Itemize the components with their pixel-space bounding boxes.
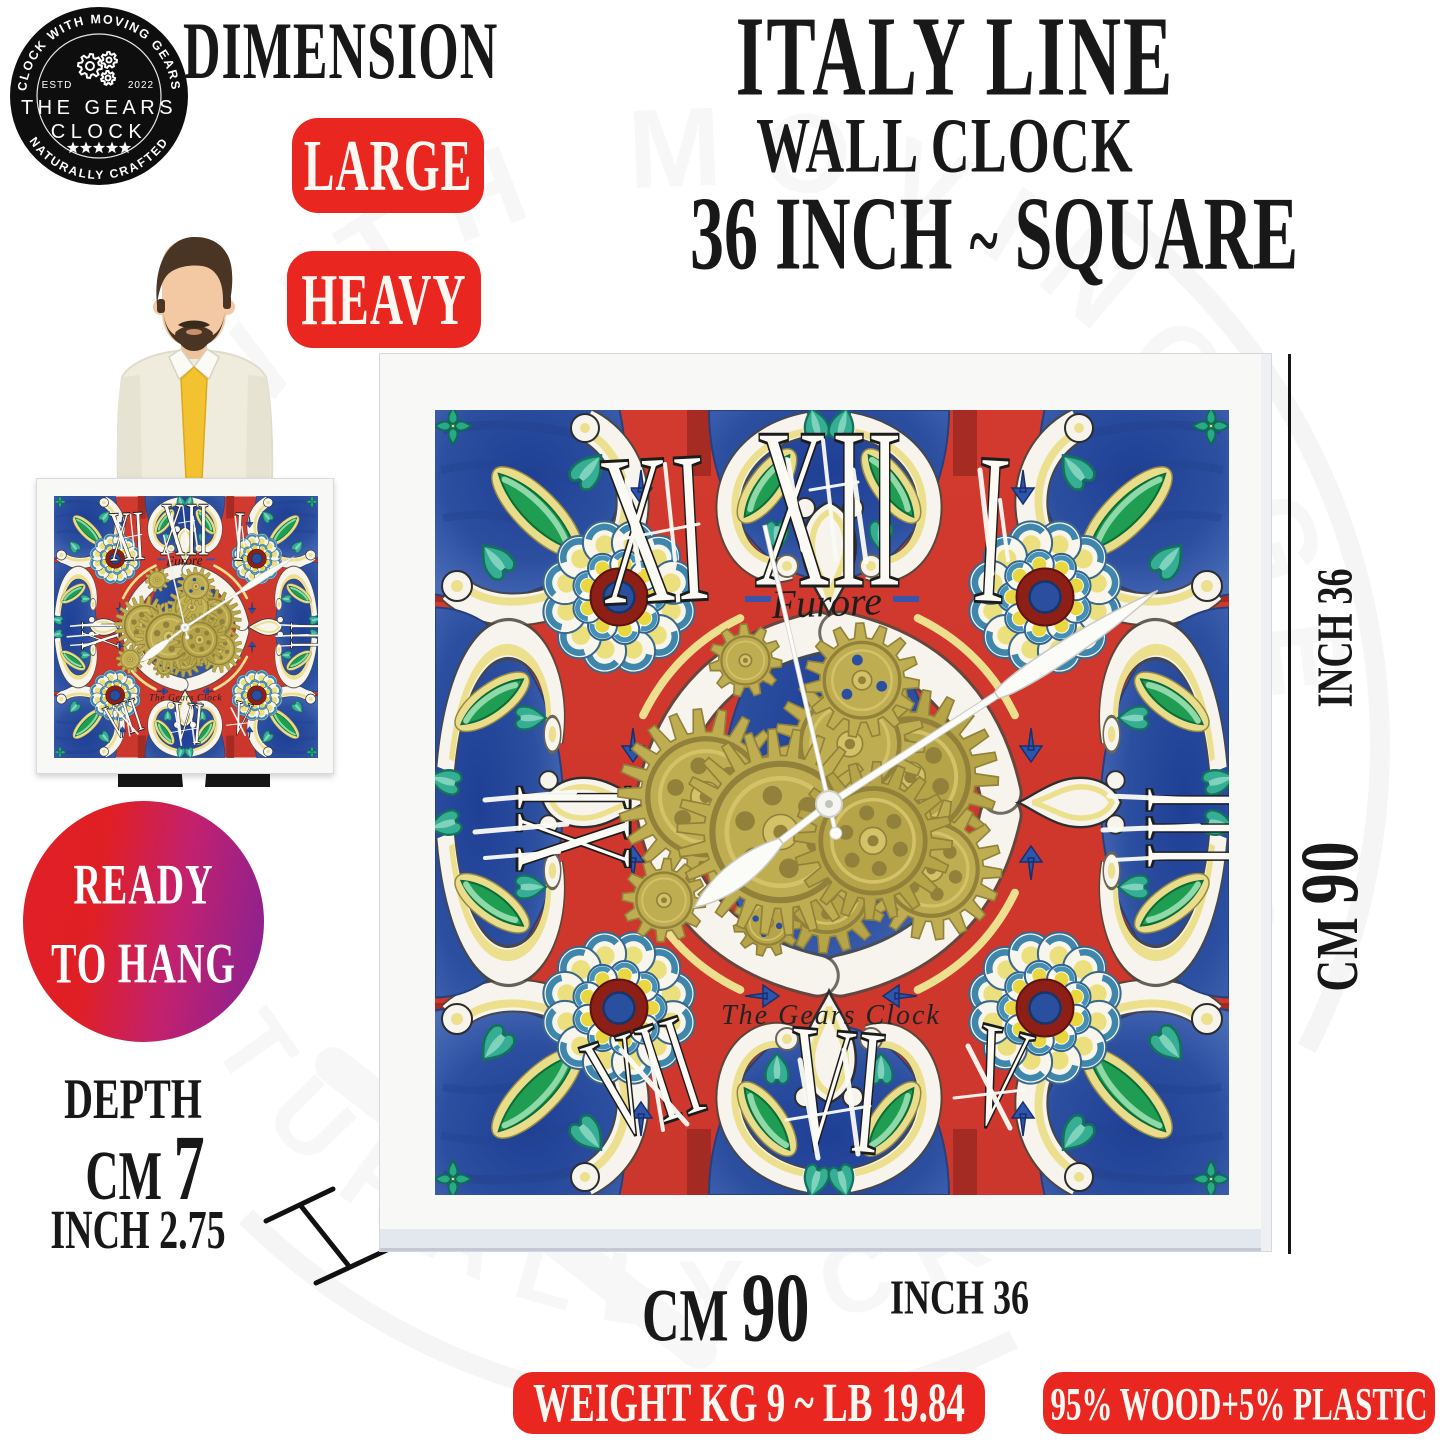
svg-text:CLOCK: CLOCK [51,121,147,143]
svg-text:THE GEARS: THE GEARS [21,97,177,119]
svg-text:ESTD: ESTD [42,80,73,91]
svg-text:2022: 2022 [128,80,154,91]
